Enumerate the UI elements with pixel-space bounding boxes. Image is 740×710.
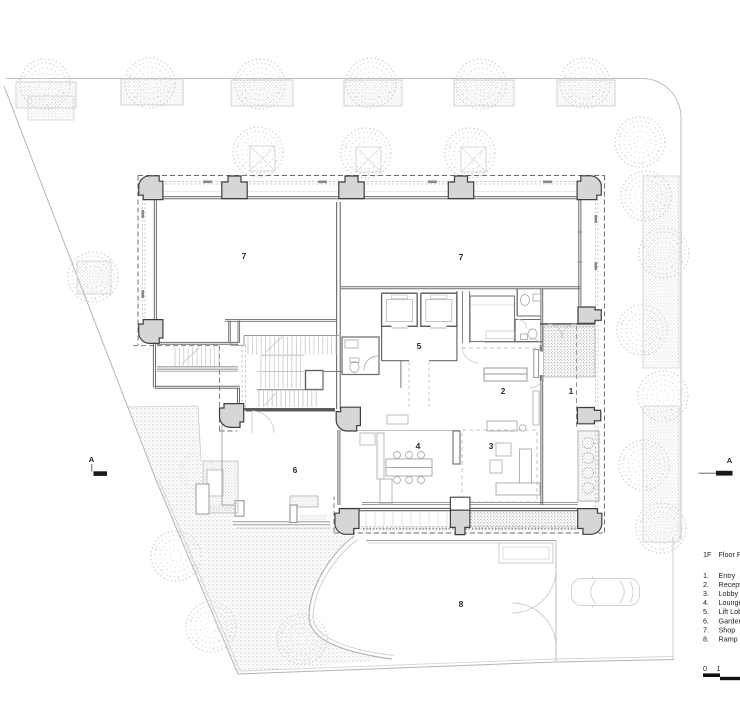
svg-text:2.: 2. <box>703 580 709 589</box>
svg-text:Garden: Garden <box>719 616 740 625</box>
svg-text:4.: 4. <box>703 598 709 607</box>
svg-text:5: 5 <box>417 341 422 351</box>
svg-text:5.: 5. <box>703 607 709 616</box>
svg-text:7.: 7. <box>703 625 709 634</box>
svg-text:1F: 1F <box>703 550 712 559</box>
svg-text:0: 0 <box>703 664 707 673</box>
svg-text:7: 7 <box>242 251 247 261</box>
svg-text:Shop: Shop <box>719 625 736 634</box>
svg-text:A: A <box>89 455 95 464</box>
svg-text:8.: 8. <box>703 635 709 644</box>
svg-text:4: 4 <box>416 441 421 451</box>
svg-text:Ramp: Ramp <box>719 635 738 644</box>
svg-text:3: 3 <box>489 441 494 451</box>
svg-text:6: 6 <box>293 465 298 475</box>
svg-text:Entry: Entry <box>719 571 736 580</box>
svg-text:Lift Lobby: Lift Lobby <box>719 607 740 616</box>
svg-text:1: 1 <box>569 386 574 396</box>
svg-text:A: A <box>727 456 733 465</box>
svg-text:1.: 1. <box>703 571 709 580</box>
svg-text:Reception: Reception <box>719 580 740 589</box>
svg-text:7: 7 <box>459 252 464 262</box>
svg-text:1: 1 <box>717 664 721 673</box>
svg-text:Lounge: Lounge <box>719 598 740 607</box>
svg-text:8: 8 <box>459 599 464 609</box>
svg-text:Lobby: Lobby <box>719 589 739 598</box>
svg-text:6.: 6. <box>703 616 709 625</box>
svg-text:Floor Plan: Floor Plan <box>719 550 740 559</box>
svg-text:2: 2 <box>501 386 506 396</box>
svg-text:3.: 3. <box>703 589 709 598</box>
